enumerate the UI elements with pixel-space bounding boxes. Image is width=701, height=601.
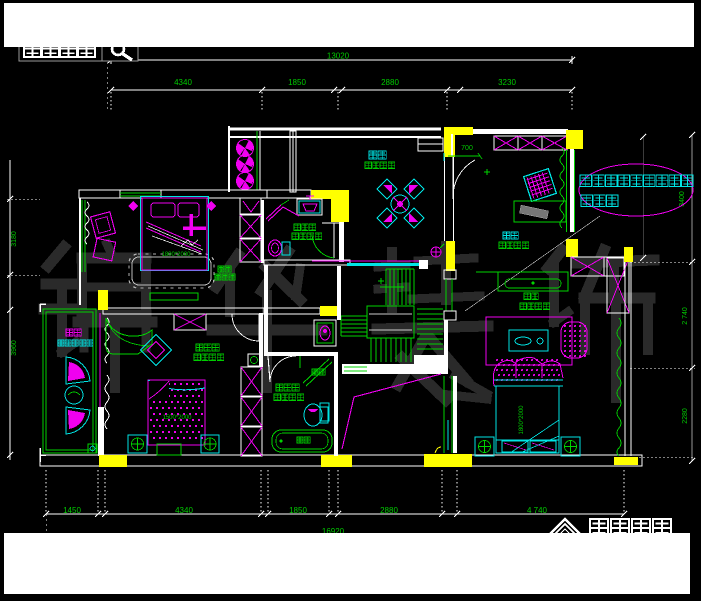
svg-text:2 740: 2 740	[682, 307, 689, 325]
svg-text:1800*2000: 1800*2000	[161, 252, 191, 258]
svg-text:3960: 3960	[11, 340, 18, 356]
svg-text:4340: 4340	[174, 78, 192, 87]
svg-text:1450: 1450	[63, 506, 81, 515]
svg-text:3180: 3180	[11, 231, 18, 247]
svg-text:3400: 3400	[679, 191, 686, 207]
svg-text:2880: 2880	[380, 506, 398, 515]
svg-text:2280: 2280	[682, 408, 689, 424]
svg-text:1500*2000: 1500*2000	[162, 415, 192, 421]
svg-text:13020: 13020	[327, 52, 350, 61]
svg-text:4 740: 4 740	[527, 506, 548, 515]
svg-text:700: 700	[461, 145, 473, 152]
svg-text:4340: 4340	[175, 506, 193, 515]
svg-text:2880: 2880	[381, 78, 399, 87]
svg-text:1800*2000: 1800*2000	[519, 405, 525, 435]
svg-text:1850: 1850	[289, 506, 307, 515]
svg-text:1850: 1850	[288, 78, 306, 87]
svg-text:3230: 3230	[498, 78, 516, 87]
